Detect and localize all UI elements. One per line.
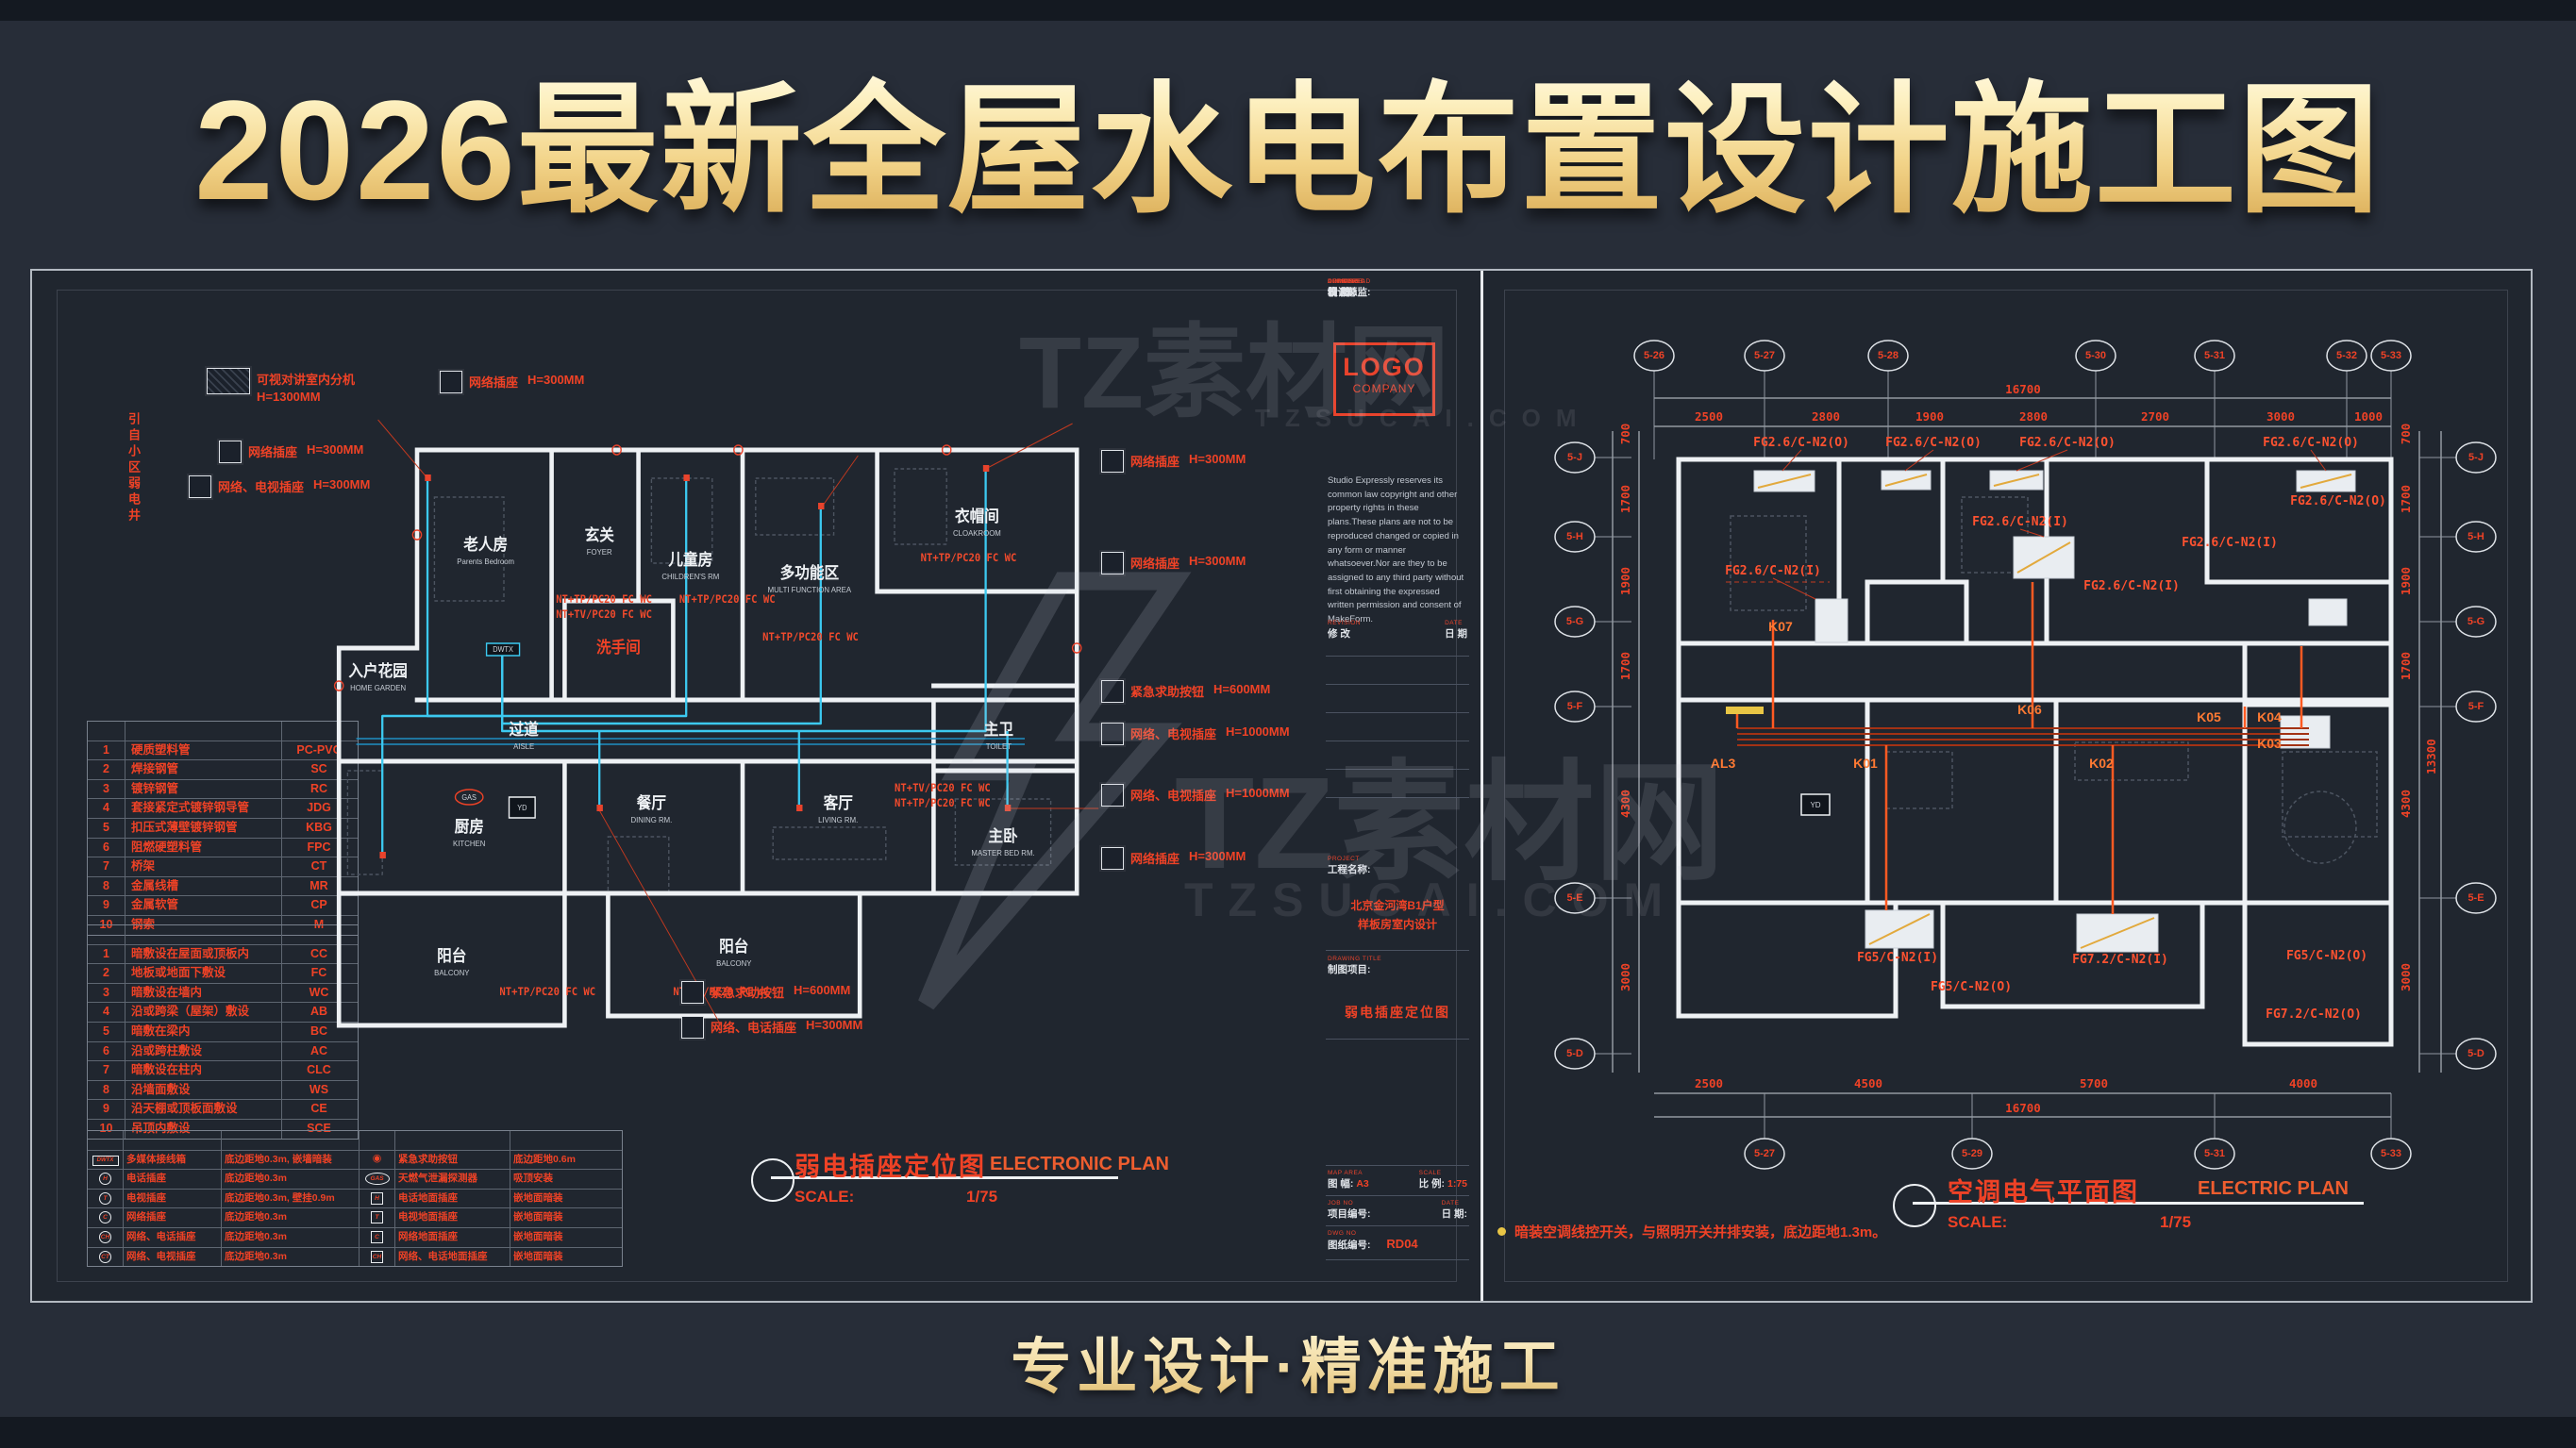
svg-text:1700: 1700: [1618, 485, 1632, 513]
grid-bubble: 5-E: [2419, 883, 2496, 913]
symbol-icon: H: [371, 1192, 383, 1205]
svg-text:5-33: 5-33: [2381, 350, 2401, 361]
riser-annotation: 引自小区弱电井: [125, 412, 142, 524]
legend-symbol: T: [360, 1208, 395, 1227]
k-label: K05: [2197, 709, 2221, 724]
svg-text:5700: 5700: [2080, 1076, 2108, 1090]
svg-text:5-29: 5-29: [1962, 1148, 1982, 1159]
svg-text:3000: 3000: [1618, 963, 1632, 991]
svg-text:FG2.6/C-N2(O): FG2.6/C-N2(O): [2290, 494, 2386, 508]
company-logo: LOGO COMPANY: [1333, 342, 1435, 416]
callout: 网络插座H=300MM: [219, 441, 363, 463]
svg-text:FG2.6/C-N2(I): FG2.6/C-N2(I): [2182, 536, 2278, 550]
legend-row: CH 网络、电话插座 底边距地0.3m C 网络地面插座 嵌地面暗装: [88, 1228, 622, 1248]
callout-height: H=300MM: [527, 373, 584, 391]
svg-text:衣帽间: 衣帽间: [955, 507, 999, 525]
symbol-icon: ◉: [373, 1154, 382, 1164]
dim-value: 2800: [1812, 409, 1840, 424]
left-title-marker: [751, 1158, 795, 1202]
legend-name: 电视插座: [124, 1190, 222, 1208]
device-dwtx: DWTX: [487, 643, 520, 656]
svg-text:NT+TP/PC20 FC WC: NT+TP/PC20 FC WC: [921, 552, 1017, 565]
dim-value: 700: [1618, 424, 1632, 445]
callout: 网络、电视插座H=300MM: [189, 475, 370, 498]
k-label: K02: [2089, 756, 2114, 771]
right-title-marker: [1893, 1184, 1936, 1227]
legend-height: 底边距地0.3m, 壁挂0.9m: [222, 1190, 360, 1208]
svg-text:5-27: 5-27: [1754, 1148, 1775, 1159]
legend-height: 嵌地面暗装: [510, 1208, 620, 1227]
svg-text:1900: 1900: [1618, 567, 1632, 595]
drawing-title-label: DRAWING TITLE 制图项目:: [1328, 956, 1467, 976]
device-icon: [1101, 847, 1124, 870]
wire-trunk-dark: [357, 739, 1025, 744]
k-label: K06: [2017, 702, 2042, 717]
svg-text:5-D: 5-D: [2467, 1048, 2484, 1059]
svg-text:FG5/C-N2(I): FG5/C-N2(I): [1857, 951, 1938, 965]
furniture-outlines: [347, 469, 1050, 893]
svg-text:5-28: 5-28: [1878, 350, 1899, 361]
callout-height: H=300MM: [1189, 452, 1246, 470]
room-label: 厨房 KITCHEN: [453, 817, 485, 848]
copyright-note: Studio Expressly reserves its common law…: [1328, 474, 1465, 627]
svg-text:阳台: 阳台: [719, 937, 748, 956]
svg-text:5-F: 5-F: [2468, 701, 2484, 712]
wire-spec-label: NT+TP/PC20 FC WC: [679, 593, 776, 607]
callout-height: H=600MM: [1213, 682, 1270, 700]
room-label: 玄关 FOYER: [585, 525, 615, 557]
callout-name: 网络、电视插座: [1130, 724, 1216, 742]
dim-value: 1700: [1618, 652, 1632, 680]
legend-height: 底边距地0.3m: [222, 1170, 360, 1189]
ac-install-note: 暗装空调线控开关，与照明开关并排安装，底边距地1.3m。: [1497, 1222, 1886, 1241]
dim-value: 1000: [2354, 409, 2383, 424]
svg-text:K01: K01: [1853, 756, 1878, 771]
fg-label: FG5/C-N2(O): [1931, 980, 2012, 994]
drawing-title-value: 弱电插座定位图: [1328, 1003, 1467, 1022]
svg-text:2500: 2500: [1695, 409, 1723, 424]
legend-symbol: T: [88, 1190, 124, 1208]
svg-text:阳台: 阳台: [437, 946, 466, 965]
legend-height: 底边距地0.3m, 嵌墙暗装: [222, 1151, 360, 1170]
fg-label: FG7.2/C-N2(O): [2266, 1007, 2362, 1022]
callout: 网络插座H=300MM: [1101, 847, 1246, 870]
fg-label: FG5/C-N2(O): [2286, 949, 2367, 963]
cell-no: 2: [88, 964, 125, 983]
room-label: 老人房 Parents Bedroom: [457, 535, 514, 566]
fg-label: FG7.2/C-N2(I): [2072, 953, 2168, 967]
dim-value: 3000: [1618, 963, 1632, 991]
svg-text:YD: YD: [1810, 801, 1820, 809]
k-label: K03: [2257, 736, 2282, 751]
dim-value: 5700: [2080, 1076, 2108, 1090]
sheet-size-scale-row: MAP AREA图 幅: A3 SCALE比 例: 1:75: [1328, 1170, 1467, 1190]
svg-text:多功能区: 多功能区: [780, 563, 840, 582]
legend-name: 网络地面插座: [395, 1228, 510, 1247]
cell-name: 沿墙面敷设: [125, 1081, 282, 1100]
svg-text:5-33: 5-33: [2381, 1148, 2401, 1159]
cell-no: 7: [88, 1061, 125, 1080]
legend-symbol: C: [360, 1228, 395, 1247]
svg-text:FG2.6/C-N2(O): FG2.6/C-N2(O): [2263, 436, 2359, 450]
cell-no: 3: [88, 780, 125, 799]
legend-name: 天燃气泄漏探测器: [395, 1170, 510, 1189]
grid-bubble: 5-D: [2419, 1039, 2496, 1069]
legend-row: H 电话插座 底边距地0.3m GAS 天燃气泄漏探测器 吸顶安装: [88, 1170, 622, 1190]
svg-text:K06: K06: [2017, 702, 2042, 717]
device-yd: YD: [1801, 794, 1830, 815]
electric-plan-canvas: 5-26 5-27 5-28 5-30 5-31 5-32: [1490, 299, 2528, 1223]
bottom-edge-bar: [0, 1417, 2576, 1448]
sheet-divider: [1480, 271, 1483, 1301]
svg-text:1000: 1000: [2354, 409, 2383, 424]
device-icon: [681, 981, 704, 1004]
left-plan-title-cn: 弱电插座定位图: [795, 1146, 986, 1183]
dim-total-top: 16700: [2005, 382, 2041, 396]
logo-subtext: COMPANY: [1336, 382, 1432, 395]
svg-text:YD: YD: [517, 804, 527, 812]
wire-spec-label: NT+TP/PC20 FC WC: [895, 797, 991, 810]
legend-table-header: [88, 1131, 622, 1151]
callout: 网络插座H=300MM: [1101, 450, 1246, 473]
legend-row: DWTX 多媒体接线箱 底边距地0.3m, 嵌墙暗装 ◉ 紧急求助按钮 底边距地…: [88, 1151, 622, 1171]
room-label: 儿童房 CHILDREN'S RM: [661, 550, 719, 581]
svg-text:4300: 4300: [2399, 790, 2413, 818]
cell-no: 7: [88, 857, 125, 876]
callout-height: H=1000MM: [1226, 786, 1290, 804]
wire-spec-label: NT+TP/PC20 FC WC: [556, 593, 652, 607]
legend-height: 吸顶安装: [510, 1170, 620, 1189]
svg-text:700: 700: [2399, 424, 2413, 445]
top-edge-bar: [0, 0, 2576, 21]
callout: 紧急求助按钮H=600MM: [1101, 680, 1270, 703]
legend-name: 网络、电话地面插座: [395, 1248, 510, 1267]
svg-text:GAS: GAS: [461, 793, 477, 802]
callout: 紧急求助按钮H=600MM: [681, 981, 850, 1004]
svg-text:4300: 4300: [1618, 790, 1632, 818]
dim-value: 4300: [1618, 790, 1632, 818]
legend-row: T 电视插座 底边距地0.3m, 壁挂0.9m H 电话地面插座 嵌地面暗装: [88, 1190, 622, 1209]
device-icon: [1101, 450, 1124, 473]
symbol-icon: T: [371, 1211, 383, 1223]
dims-left: 70017001900170043003000: [1618, 424, 1632, 991]
dim-value: 3000: [2399, 963, 2413, 991]
wire-spec-label: NT+TP/PC20 FC WC: [499, 986, 595, 999]
device-icon: [440, 371, 462, 393]
svg-text:LIVING RM.: LIVING RM.: [818, 816, 858, 824]
date-label-en: DATE: [1445, 620, 1467, 626]
svg-text:FG7.2/C-N2(I): FG7.2/C-N2(I): [2072, 953, 2168, 967]
legend-table-body: DWTX 多媒体接线箱 底边距地0.3m, 嵌墙暗装 ◉ 紧急求助按钮 底边距地…: [88, 1151, 622, 1267]
legend-symbol: ◉: [360, 1151, 395, 1170]
k-label: K04: [2257, 709, 2282, 724]
svg-text:5-30: 5-30: [2085, 350, 2106, 361]
legend-height: 底边距地0.3m: [222, 1228, 360, 1247]
device-icon: [207, 368, 250, 394]
device-gas: GAS: [455, 790, 482, 805]
cell-no: 6: [88, 839, 125, 857]
grid-bubble: 5-D: [1555, 1039, 1631, 1069]
dwgno-value: RD04: [1386, 1237, 1417, 1251]
svg-text:NT+TP/PC20 FC WC: NT+TP/PC20 FC WC: [556, 593, 652, 607]
device-icon: [219, 441, 242, 463]
callout-name: 紧急求助按钮: [711, 983, 784, 1001]
wire-spec-label: NT+TV/PC20 FC WC: [556, 608, 652, 622]
device-icon: [189, 475, 211, 498]
wire-spec-label: NT+TV/PC20 FC WC: [895, 782, 991, 795]
drawing-frame: 引自小区弱电井 1 硬质塑料管 PC-PVC 2 焊接钢管 SC 3 镀锌钢管 …: [30, 269, 2533, 1303]
cell-no: 2: [88, 760, 125, 779]
cell-abbr: CE: [282, 1100, 356, 1119]
header-cell: [124, 1131, 222, 1150]
symbol-icon: CH: [371, 1251, 383, 1263]
callout-name: 网络、电话插座: [711, 1018, 796, 1036]
symbol-icon: CT: [99, 1251, 111, 1263]
dim-value: 2800: [2019, 409, 2048, 424]
legend-symbol: H: [88, 1170, 124, 1189]
legend-name: 电话插座: [124, 1170, 222, 1189]
callout-name: 网络插座: [1130, 849, 1179, 867]
grid-bubble: 5-26: [1634, 341, 1674, 459]
cell-no: 5: [88, 819, 125, 838]
callout-height: H=600MM: [794, 983, 850, 1001]
grid-bubble: 5-F: [1555, 691, 1631, 722]
callout: 网络、电话插座H=300MM: [681, 1016, 862, 1039]
svg-text:2800: 2800: [1812, 409, 1840, 424]
room-label: 阳台 BALCONY: [434, 946, 470, 977]
svg-text:BALCONY: BALCONY: [434, 969, 470, 977]
svg-text:5-G: 5-G: [1566, 616, 1583, 627]
callout-height: H=300MM: [1189, 554, 1246, 572]
poster-root: { "page":{"title":"2026最新全屋水电布置设计施工图","t…: [0, 0, 2576, 1448]
legend-height: 嵌地面暗装: [510, 1190, 620, 1208]
right-scale-value: 1/75: [2160, 1213, 2191, 1232]
room-label: 阳台 BALCONY: [716, 937, 752, 968]
svg-text:AL3: AL3: [1711, 756, 1736, 771]
svg-text:入户花园: 入户花园: [348, 661, 408, 680]
svg-text:玄关: 玄关: [585, 525, 615, 544]
wire-spec-label: NT+TP/PC20 FC WC: [762, 631, 859, 644]
svg-text:4500: 4500: [1854, 1076, 1882, 1090]
room-label: 过道 AISLE: [510, 720, 540, 751]
electronic-plan-canvas: DWTX YD GAS 老人房 Parents Bedroom: [200, 365, 1181, 1073]
svg-text:NT+TP/PC20 FC WC: NT+TP/PC20 FC WC: [679, 593, 776, 607]
callout-name: 可视对讲室内分机: [257, 370, 355, 388]
legend-name: 电话地面插座: [395, 1190, 510, 1208]
wire-spec-label: NT+TP/PC20 FC WC: [921, 552, 1017, 565]
legend-symbol: GAS: [360, 1170, 395, 1189]
callout-name: 紧急求助按钮: [1130, 682, 1204, 700]
svg-text:CHILDREN'S RM: CHILDREN'S RM: [661, 573, 719, 581]
note-bullet-icon: [1497, 1227, 1506, 1236]
cell-no: 4: [88, 1003, 125, 1022]
svg-text:K07: K07: [1768, 619, 1793, 634]
cell-name: 沿天棚或顶板面敷设: [125, 1100, 282, 1119]
symbol-icon: GAS: [365, 1173, 390, 1185]
svg-text:FG2.6/C-N2(I): FG2.6/C-N2(I): [2083, 579, 2180, 593]
grid-bubble: 5-G: [2419, 607, 2496, 637]
svg-text:FG7.2/C-N2(O): FG7.2/C-N2(O): [2266, 1007, 2362, 1022]
legend-height: 底边距地0.6m: [510, 1151, 620, 1170]
legend-height: 嵌地面暗装: [510, 1228, 620, 1247]
legend-symbol: C: [88, 1208, 124, 1227]
svg-text:餐厅: 餐厅: [636, 793, 666, 812]
project-label: PROJECT 工程名称:: [1328, 856, 1467, 876]
svg-text:3000: 3000: [2399, 963, 2413, 991]
legend-symbol: CH: [360, 1248, 395, 1267]
svg-text:K02: K02: [2089, 756, 2114, 771]
svg-text:AISLE: AISLE: [513, 742, 535, 751]
header-cell: [222, 1131, 360, 1150]
callout: 可视对讲室内分机H=1300MM: [207, 368, 355, 404]
svg-text:2500: 2500: [1695, 1076, 1723, 1090]
callout-name: 网络插座: [469, 373, 518, 391]
ac-trunk-wires: [1737, 728, 2309, 745]
svg-text:5-J: 5-J: [2468, 452, 2484, 463]
right-scale-label: SCALE:: [1948, 1213, 2007, 1232]
symbol-icon: H: [99, 1173, 111, 1185]
svg-text:1900: 1900: [1915, 409, 1944, 424]
grid-bubble: 5-J: [2419, 442, 2496, 473]
svg-text:主卫: 主卫: [984, 720, 1013, 739]
svg-text:5-F: 5-F: [1567, 701, 1583, 712]
header-cell: [510, 1131, 620, 1150]
callout: 网络、电视插座H=1000MM: [1101, 784, 1290, 807]
left-plan-title-en: ELECTRONIC PLAN: [990, 1154, 1169, 1175]
dim-value: 4000: [2289, 1076, 2317, 1090]
dim-value: 1700: [2399, 485, 2413, 513]
date-label-cn: 日 期: [1445, 628, 1467, 640]
fg-label: FG2.6/C-N2(O): [1753, 436, 1849, 450]
svg-text:厨房: 厨房: [455, 817, 484, 836]
legend-symbol: CT: [88, 1248, 124, 1267]
svg-text:5-J: 5-J: [1567, 452, 1582, 463]
svg-text:BALCONY: BALCONY: [716, 959, 752, 968]
dim-total-right: 13300: [2424, 739, 2438, 774]
legend-name: 网络、电视插座: [124, 1248, 222, 1267]
callout: 网络插座H=300MM: [440, 371, 584, 393]
legend-name: 紧急求助按钮: [395, 1151, 510, 1170]
svg-text:DWTX: DWTX: [493, 645, 513, 654]
svg-text:1700: 1700: [2399, 652, 2413, 680]
svg-text:CLOAKROOM: CLOAKROOM: [953, 529, 1001, 538]
fg-label: FG2.6/C-N2(O): [2263, 436, 2359, 450]
legend-row: C 网络插座 底边距地0.3m T 电视地面插座 嵌地面暗装: [88, 1208, 622, 1228]
callout-name: 网络插座: [1130, 554, 1179, 572]
k-label: AL3: [1711, 756, 1736, 771]
svg-text:NT+TP/PC20 FC WC: NT+TP/PC20 FC WC: [895, 797, 991, 810]
legend-symbol: H: [360, 1190, 395, 1208]
svg-text:儿童房: 儿童房: [667, 550, 712, 569]
legend-table: DWTX 多媒体接线箱 底边距地0.3m, 嵌墙暗装 ◉ 紧急求助按钮 底边距地…: [87, 1130, 623, 1267]
legend-height: 底边距地0.3m: [222, 1208, 360, 1227]
dim-value: 2500: [1695, 409, 1723, 424]
svg-text:FG2.6/C-N2(I): FG2.6/C-N2(I): [1725, 564, 1821, 578]
legend-symbol: CH: [88, 1228, 124, 1247]
svg-text:1900: 1900: [2399, 567, 2413, 595]
project-name: 北京金河湾B1户型 样板房室内设计: [1328, 896, 1467, 935]
svg-text:NT+TP/PC20 FC WC: NT+TP/PC20 FC WC: [499, 986, 595, 999]
symbol-icon: T: [99, 1192, 111, 1205]
svg-text:2700: 2700: [2141, 409, 2169, 424]
callout-height: H=300MM: [313, 477, 370, 495]
svg-text:FOYER: FOYER: [587, 548, 612, 557]
dim-value: 2500: [1695, 1076, 1723, 1090]
logo-text: LOGO: [1336, 353, 1432, 382]
callout-name: 网络、电视插座: [1130, 786, 1216, 804]
svg-text:5-31: 5-31: [2204, 1148, 2225, 1159]
cell-no: 6: [88, 1042, 125, 1061]
table-row: 8 沿墙面敷设 WS: [88, 1081, 358, 1101]
callout-name: 网络插座: [1130, 452, 1179, 470]
room-label: 主卧 MASTER BED RM.: [971, 826, 1034, 857]
wire-spec-labels: NT+TP/PC20 FC WCNT+TV/PC20 FC WCNT+TP/PC…: [499, 552, 1016, 999]
fg-label: FG2.6/C-N2(I): [1725, 564, 1821, 578]
grid-bubble: 5-E: [1555, 883, 1631, 913]
symbol-icon: C: [99, 1211, 111, 1223]
jobno-date-row: JOB NO项目编号: DATE日 期:: [1328, 1200, 1467, 1221]
svg-text:过道: 过道: [510, 720, 540, 739]
svg-text:700: 700: [1618, 424, 1632, 445]
left-scale-value: 1/75: [966, 1188, 997, 1207]
right-plan-title-en: ELECTRIC PLAN: [2198, 1178, 2349, 1200]
svg-text:老人房: 老人房: [462, 535, 508, 554]
dwgno-row: DWG NO 图纸编号: RD04: [1328, 1230, 1467, 1252]
fg-label: FG2.6/C-N2(O): [2290, 494, 2386, 508]
room-label: 衣帽间 CLOAKROOM: [953, 507, 1001, 538]
room-label: 多功能区 MULTI FUNCTION AREA: [768, 563, 852, 594]
svg-text:FG5/C-N2(O): FG5/C-N2(O): [2286, 949, 2367, 963]
cell-no: 8: [88, 877, 125, 896]
dim-value: 2700: [2141, 409, 2169, 424]
device-yd: YD: [510, 797, 536, 818]
symbol-icon: C: [371, 1231, 383, 1243]
svg-text:NT+TV/PC20 FC WC: NT+TV/PC20 FC WC: [895, 782, 991, 795]
al3-panel: [1726, 707, 1764, 714]
svg-text:TOILET: TOILET: [986, 742, 1012, 751]
svg-text:K04: K04: [2257, 709, 2282, 724]
grid-bubble: 5-31: [2195, 341, 2234, 459]
room-label: 客厅 LIVING RM.: [818, 793, 858, 824]
dim-value: 1900: [1915, 409, 1944, 424]
svg-text:FG2.6/C-N2(O): FG2.6/C-N2(O): [1753, 436, 1849, 450]
callout-height: H=300MM: [307, 442, 363, 460]
svg-text:1700: 1700: [2399, 485, 2413, 513]
svg-text:KITCHEN: KITCHEN: [453, 840, 485, 848]
callout-height: H=1000MM: [1226, 724, 1290, 742]
grid-bubble: 5-31: [2195, 1093, 2234, 1169]
svg-text:洗手间: 洗手间: [596, 638, 641, 657]
dims-right: 70017001900170043003000: [2399, 424, 2413, 991]
device-icon: [1101, 784, 1124, 807]
callout: 网络插座H=300MM: [1101, 552, 1246, 574]
legend-name: 网络插座: [124, 1208, 222, 1227]
grid-bubble: 5-33: [2371, 1093, 2411, 1169]
cell-no: 3: [88, 984, 125, 1003]
legend-row: CT 网络、电视插座 底边距地0.3m CH 网络、电话地面插座 嵌地面暗装: [88, 1248, 622, 1267]
legend-name: 电视地面插座: [395, 1208, 510, 1227]
svg-text:主卧: 主卧: [988, 826, 1018, 845]
svg-text:5-H: 5-H: [2467, 531, 2484, 542]
room-label: 主卫 TOILET: [984, 720, 1013, 751]
dim-value: 1700: [1618, 485, 1632, 513]
device-icon: [1101, 552, 1124, 574]
k-label: K07: [1768, 619, 1793, 634]
grid-bubble: 5-G: [1555, 607, 1631, 637]
legend-symbol: DWTX: [88, 1151, 124, 1170]
cell-no: 8: [88, 1081, 125, 1100]
callout-height: H=300MM: [1189, 849, 1246, 867]
